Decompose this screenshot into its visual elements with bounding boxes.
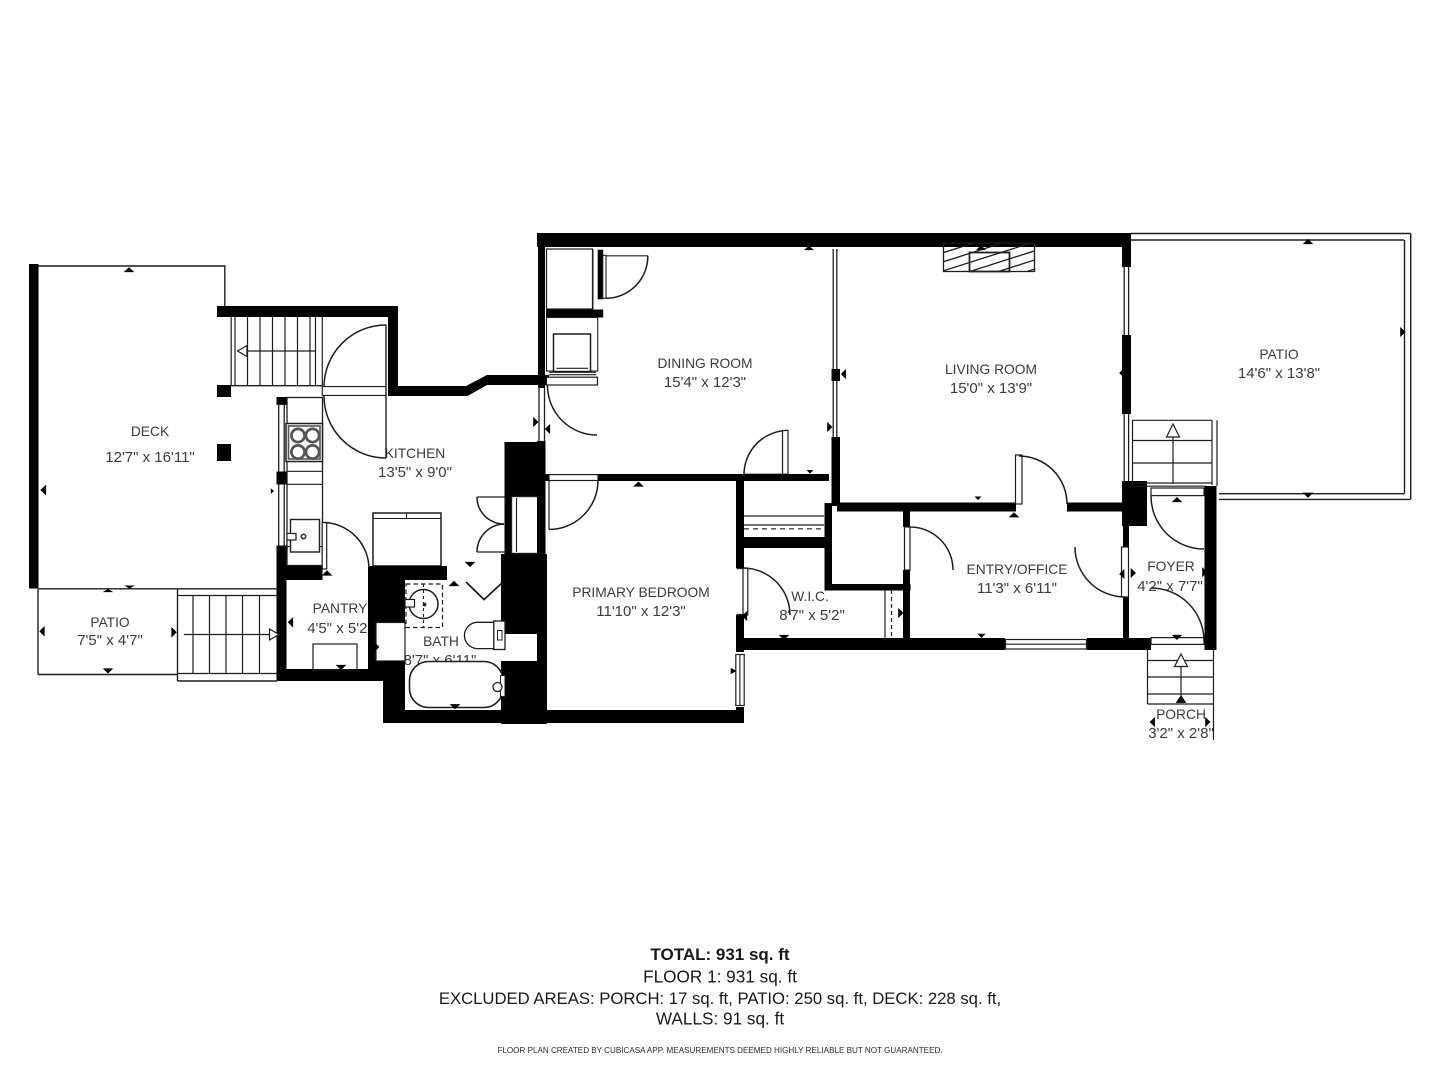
svg-text:FLOOR PLAN CREATED BY CUBICASA: FLOOR PLAN CREATED BY CUBICASA APP. MEAS… [497,1046,942,1055]
svg-text:3'2" x 2'8": 3'2" x 2'8" [1148,725,1214,742]
svg-text:13'5" x 9'0": 13'5" x 9'0" [378,464,452,481]
svg-text:W.I.C.: W.I.C. [791,589,829,604]
svg-text:7'5" x 4'7": 7'5" x 4'7" [77,632,143,649]
svg-text:LIVING ROOM: LIVING ROOM [945,362,1037,377]
svg-text:KITCHEN: KITCHEN [385,446,446,461]
svg-text:4'2" x 7'7": 4'2" x 7'7" [1137,578,1203,595]
svg-text:12'7" x 16'11": 12'7" x 16'11" [105,449,195,466]
svg-text:DECK: DECK [131,424,170,439]
svg-text:PORCH: PORCH [1156,707,1206,722]
svg-text:14'6" x 13'8": 14'6" x 13'8" [1238,365,1320,382]
svg-text:15'4" x 12'3": 15'4" x 12'3" [664,374,746,391]
svg-text:TOTAL: 931 sq. ft: TOTAL: 931 sq. ft [650,945,790,964]
svg-text:WALLS: 91 sq. ft: WALLS: 91 sq. ft [656,1009,785,1029]
svg-text:11'3" x 6'11": 11'3" x 6'11" [977,580,1057,597]
svg-text:BATH: BATH [423,634,459,649]
svg-text:PRIMARY BEDROOM: PRIMARY BEDROOM [572,585,709,600]
svg-text:4'5" x 5'2": 4'5" x 5'2" [307,620,373,637]
svg-text:PANTRY: PANTRY [313,601,368,616]
svg-text:PATIO: PATIO [1259,347,1299,362]
svg-text:DINING ROOM: DINING ROOM [657,356,752,371]
svg-text:PATIO: PATIO [90,615,130,630]
svg-text:EXCLUDED AREAS: PORCH: 17 sq.: EXCLUDED AREAS: PORCH: 17 sq. ft, PATIO:… [439,989,1001,1008]
svg-text:FLOOR 1: 931 sq. ft: FLOOR 1: 931 sq. ft [643,967,797,987]
svg-text:11'10" x 12'3": 11'10" x 12'3" [596,603,686,620]
svg-text:FOYER: FOYER [1147,559,1195,574]
svg-text:15'0" x 13'9": 15'0" x 13'9" [950,380,1032,397]
svg-text:ENTRY/OFFICE: ENTRY/OFFICE [967,562,1068,577]
